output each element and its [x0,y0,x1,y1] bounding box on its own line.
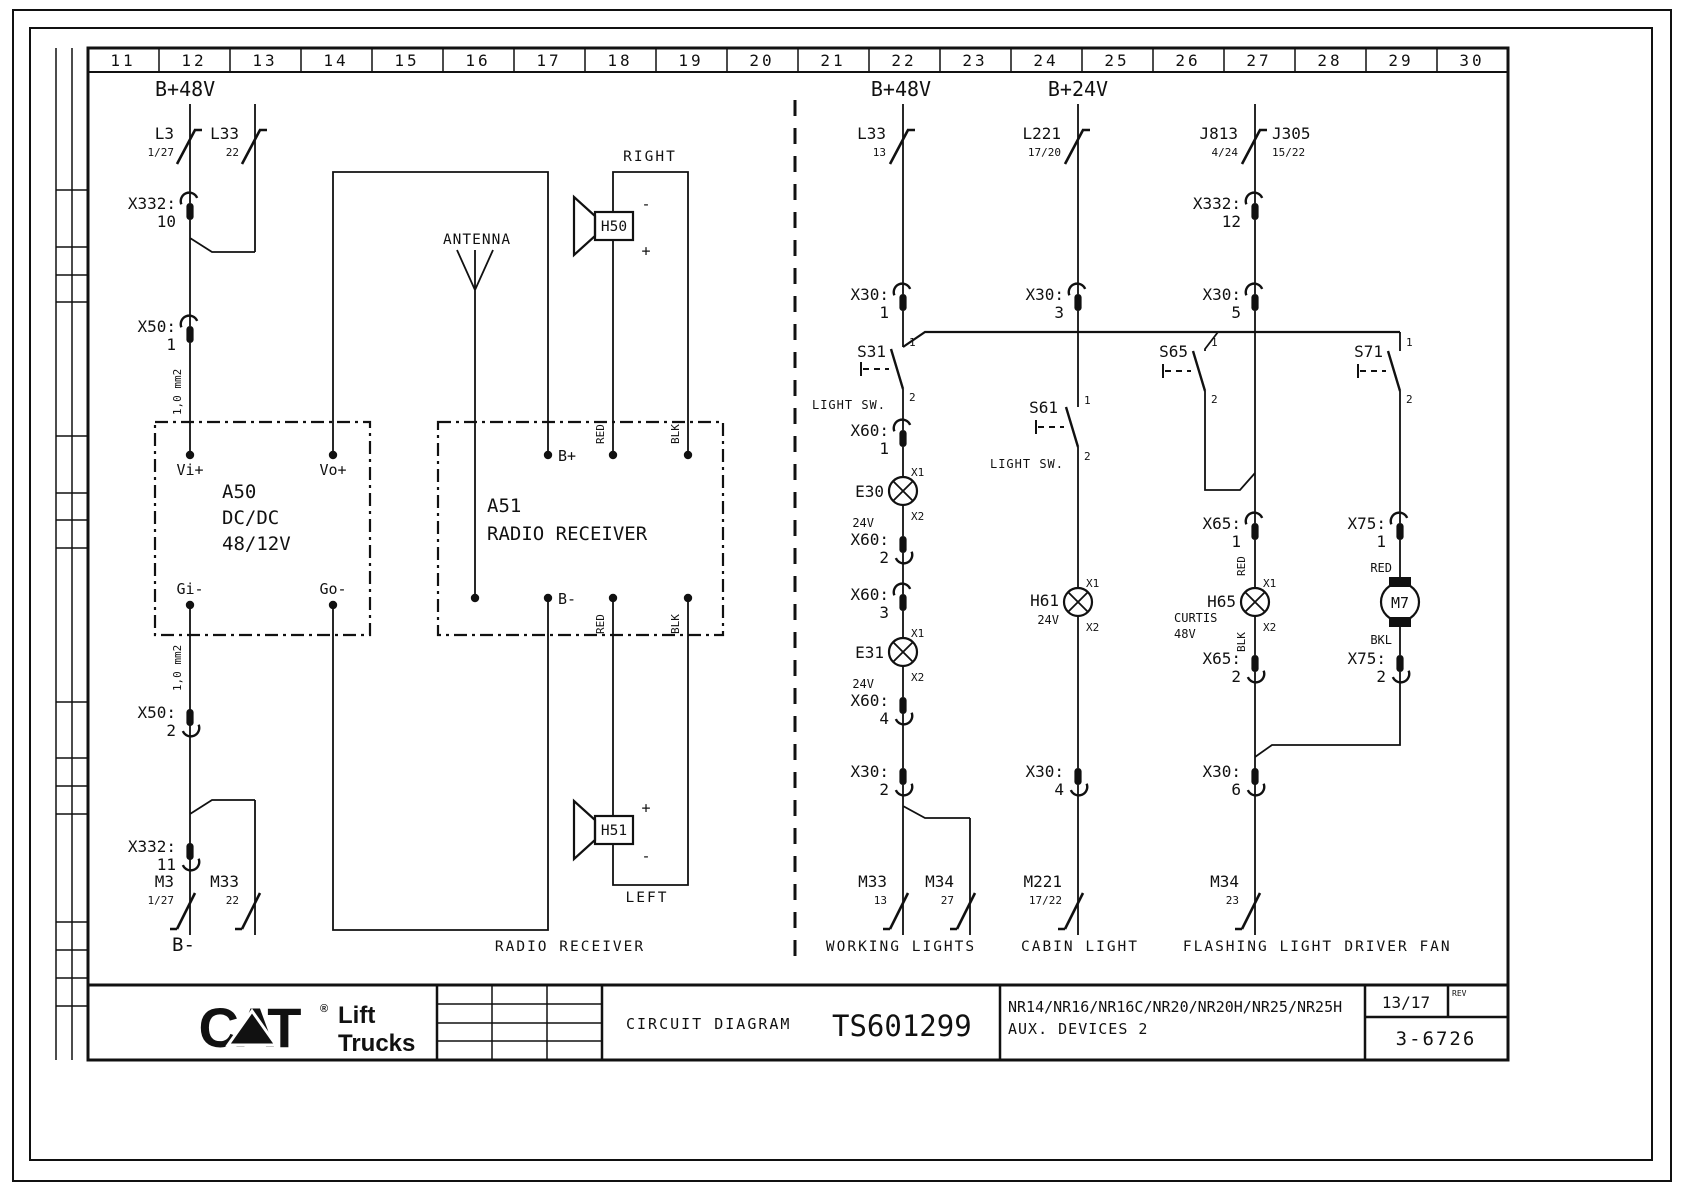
connector-x60-1-pin: 1 [879,439,889,458]
connector-x60-2 [896,536,915,566]
connector-x30-2-pin: 2 [879,780,889,799]
connector-x332-12 [1243,190,1262,220]
ruler-cell: 13 [252,51,277,70]
switch-s31-pin2: 2 [909,391,916,404]
connector-x30-1-ref: X30: [850,285,889,304]
switch-s65-pin2: 2 [1211,393,1218,406]
connector-x30-6 [1248,768,1267,798]
antenna-label: ANTENNA [443,232,511,248]
connector-x65-2-pin: 2 [1231,667,1241,686]
connector-x65-2 [1248,655,1267,685]
connector-x30-1 [891,281,910,311]
switch-s71-pin2: 2 [1406,393,1413,406]
lamp-h61 [1064,588,1092,616]
switch-s61-pin1: 1 [1084,394,1091,407]
ruler-cell: 15 [394,51,419,70]
connector-x60-4 [896,697,915,727]
connector-x75-1-ref: X75: [1347,514,1386,533]
switch-s61-function: LIGHT SW. [990,457,1064,471]
speaker-h51-minus: - [641,847,650,865]
contact-l221-pin: 17/20 [1028,146,1061,159]
ruler-cell: 18 [607,51,632,70]
contact-m221-ref: M221 [1023,872,1062,891]
lamp-h61-x2: X2 [1086,621,1099,634]
wire-gauge-label: 1,0 mm2 [171,369,184,415]
title-block: CAT ® Lift Trucks CIRCUIT DIAGRAM TS6012… [88,985,1508,1060]
connector-x60-3-ref: X60: [850,585,889,604]
contact-l33-13-pin: 13 [873,146,886,159]
contact-m34-27-pin: 27 [941,894,954,907]
lamp-h61-ref: H61 [1030,591,1059,610]
driver-fan-footer: DRIVER FAN [1344,939,1451,955]
ruler-cell: 26 [1175,51,1200,70]
contact-j813-ref: J813 [1199,124,1238,143]
contact-j305-ref: J305 [1272,124,1311,143]
lamp-e31-ref: E31 [855,643,884,662]
ruler-cell: 17 [536,51,561,70]
ruler-cell: 29 [1388,51,1413,70]
flashing-light-circuit: J813 4/24 J305 15/22 X332: 12 X30: 5 S65… [1159,104,1333,955]
connector-x60-4-pin: 4 [879,709,889,728]
connector-x75-1-pin: 1 [1376,532,1386,551]
contact-m34-27-ref: M34 [925,872,954,891]
working-lights-circuit: L33 13 X30: 1 S31 1 2 LIGHT SW. X60: 1 E… [812,104,1400,955]
antenna-symbol [457,250,493,598]
connector-x332-11 [183,843,202,873]
lamp-e31 [889,638,917,666]
switch-s31: S31 1 2 LIGHT SW. [812,336,916,412]
radio-section: B+48V L3 1/27 L33 22 X332: 10 X50: 1 1,0… [128,77,723,956]
switch-s31-ref: S31 [857,342,886,361]
a50-terminal-vo: Vo+ [319,461,346,479]
connector-x60-3-pin: 3 [879,603,889,622]
connector-x332-11-ref: X332: [128,837,176,856]
connector-x50-2-pin: 2 [166,721,176,740]
a51-terminal-bminus: B- [558,590,576,608]
fan-wire-red-label: RED [1370,561,1392,575]
cat-logo: CAT ® Lift Trucks [199,996,416,1059]
contact-l221-ref: L221 [1022,124,1061,143]
a50-terminal-go: Go- [319,580,346,598]
connector-x50-1-pin: 1 [166,335,176,354]
cabin-light-footer: CABIN LIGHT [1021,939,1139,955]
flashing-light-footer: FLASHING LIGHT [1183,939,1333,955]
switch-s65-pin1: 1 [1211,336,1218,349]
cat-logo-reg: ® [320,1003,328,1015]
ground-label: B- [172,934,195,956]
contact-l33-pin: 22 [226,146,239,159]
contact-m33-13-ref: M33 [858,872,887,891]
lamp-e30-ref: E30 [855,482,884,501]
zone-strip [56,48,88,1060]
rev-label: REV [1452,989,1467,998]
switch-s61-pin2: 2 [1084,450,1091,463]
switch-s61-ref: S61 [1029,398,1058,417]
lamp-h65 [1241,588,1269,616]
connector-x60-3 [891,581,910,611]
speaker-h51-plus: + [641,799,650,817]
working-lights-footer: WORKING LIGHTS [826,939,976,955]
ruler-cell: 22 [891,51,916,70]
switch-s71-pin1: 1 [1406,336,1413,349]
lamp-h65-x1: X1 [1263,577,1276,590]
a51-ref: A51 [487,495,521,517]
circuit-diagram: 11 12 13 14 15 16 17 18 19 20 21 22 23 2… [0,0,1684,1191]
ruler-cell: 28 [1317,51,1342,70]
switch-s65-ref: S65 [1159,342,1188,361]
wire-red-label: RED [1235,556,1248,576]
contact-j813-pin: 4/24 [1212,146,1239,159]
connector-x60-1 [891,417,910,447]
connector-x30-4-pin: 4 [1054,780,1064,799]
ruler-cell: 14 [323,51,348,70]
contact-m34-23-ref: M34 [1210,872,1239,891]
connector-x332-10-ref: X332: [128,194,176,213]
connector-x30-6-ref: X30: [1202,762,1241,781]
ruler-cell: 16 [465,51,490,70]
ruler-cell: 11 [110,51,135,70]
supply-48v-label-right: B+48V [871,77,931,101]
lamp-h65-ref: H65 [1207,592,1236,611]
ruler-cell: 24 [1033,51,1058,70]
lamp-h65-volt: 48V [1174,627,1196,641]
ruler-cell: 20 [749,51,774,70]
connector-x60-1-ref: X60: [850,421,889,440]
contact-m33-13-pin: 13 [874,894,887,907]
a51-wire-blk-top: BLK [669,424,682,444]
sheet-number: 13/17 [1382,993,1430,1012]
connector-x65-2-ref: X65: [1202,649,1241,668]
connector-x30-6-pin: 6 [1231,780,1241,799]
connector-x30-4 [1071,768,1090,798]
contact-m33-pin: 22 [226,894,239,907]
contact-j305-pin: 15/22 [1272,146,1305,159]
speaker-h51-ref: H51 [601,823,627,839]
lamp-e30 [889,477,917,505]
connector-x75-2 [1393,655,1412,685]
connector-x50-1 [178,313,197,343]
connector-x332-10 [178,190,197,220]
subtitle: AUX. DEVICES 2 [1008,1020,1148,1038]
contact-l3-ref: L3 [155,124,174,143]
contact-l33-ref: L33 [210,124,239,143]
switch-s31-pin1: 1 [909,336,916,349]
connector-x50-2-ref: X50: [137,703,176,722]
models: NR14/NR16/NR16C/NR20/NR20H/NR25/NR25H [1008,998,1342,1016]
cat-logo-lift: Lift [338,1002,375,1029]
connector-x50-2 [183,709,202,739]
connector-x75-1 [1388,510,1407,540]
connector-x30-2 [896,768,915,798]
cat-logo-trucks: Trucks [338,1030,415,1057]
lamp-e30-x2: X2 [911,510,924,523]
a50-line1: DC/DC [222,507,279,529]
ruler-cell: 12 [181,51,206,70]
connector-x30-4-ref: X30: [1025,762,1064,781]
aux-section: B+48V B+24V L33 13 X30: 1 S31 1 2 LIGHT … [812,77,1452,955]
supply-24v-label: B+24V [1048,77,1108,101]
connector-x65-1-pin: 1 [1231,532,1241,551]
speaker-right-position: RIGHT [623,149,677,165]
ruler-cell: 30 [1459,51,1484,70]
a50-terminal-gi: Gi- [176,580,203,598]
connector-x332-10-pin: 10 [157,212,176,231]
connector-x332-12-pin: 12 [1222,212,1241,231]
ruler-cell: 23 [962,51,987,70]
lamp-e30-volt: 24V [852,516,874,530]
motor-m7: M7 [1381,577,1419,627]
connector-x60-4-ref: X60: [850,691,889,710]
contact-m33-ref: M33 [210,872,239,891]
fan-wire-bkl-label: BKL [1370,633,1392,647]
a51-wire-red-top: RED [594,424,607,444]
bus-48v [903,332,1400,347]
doc-type: CIRCUIT DIAGRAM [626,1015,791,1033]
motor-m7-ref: M7 [1391,594,1409,612]
contact-m3-pin: 1/27 [148,894,175,907]
lamp-h65-x2: X2 [1263,621,1276,634]
connector-x30-3-pin: 3 [1054,303,1064,322]
connector-x30-5-pin: 5 [1231,303,1241,322]
contact-m3-ref: M3 [155,872,174,891]
connector-x65-1-ref: X65: [1202,514,1241,533]
speaker-h50-plus: + [641,242,650,260]
driver-fan-circuit: S71 1 2 X75: 1 RED M7 BKL X75: 2 DRIVER … [1255,332,1452,955]
connector-x332-12-ref: X332: [1193,194,1241,213]
contact-l3-pin: 1/27 [148,146,175,159]
speaker-h50-minus: - [641,195,650,213]
doc-number: TS601299 [832,1009,972,1043]
lamp-h61-volt: 24V [1037,613,1059,627]
a50-line2: 48/12V [222,533,291,555]
connector-x75-2-ref: X75: [1347,649,1386,668]
supply-48v-label: B+48V [155,77,215,101]
a51-terminal-bplus: B+ [558,447,576,465]
connector-x75-2-pin: 2 [1376,667,1386,686]
lamp-h65-maker: CURTIS [1174,611,1217,625]
switch-s65: S65 1 2 [1159,332,1255,490]
ruler-cell: 27 [1246,51,1271,70]
lamp-e31-x1: X1 [911,627,924,640]
lamp-e31-volt: 24V [852,677,874,691]
radio-footer-label: RADIO RECEIVER [495,939,645,955]
wire-gauge-label-2: 1,0 mm2 [171,645,184,691]
switch-s71-ref: S71 [1354,342,1383,361]
connector-x60-2-pin: 2 [879,548,889,567]
connector-x60-2-ref: X60: [850,530,889,549]
ruler-cell: 25 [1104,51,1129,70]
a51-name: RADIO RECEIVER [487,523,648,545]
connector-x30-1-pin: 1 [879,303,889,322]
lamp-e31-x2: X2 [911,671,924,684]
connector-x30-3-ref: X30: [1025,285,1064,304]
a51-wire-blk-bottom: BLK [669,614,682,634]
connector-x65-1 [1243,510,1262,540]
connector-x30-2-ref: X30: [850,762,889,781]
cabin-light-circuit: L221 17/20 X30: 3 S61 1 2 LIGHT SW. H61 … [990,104,1139,955]
ruler-cell: 19 [678,51,703,70]
connector-x30-5-ref: X30: [1202,285,1241,304]
switch-s71: S71 1 2 [1354,336,1413,406]
speaker-h50-ref: H50 [601,219,627,235]
speaker-left-position: LEFT [626,890,669,906]
contact-m34-23-pin: 23 [1226,894,1239,907]
switch-s61: S61 1 2 LIGHT SW. [990,394,1091,471]
connector-x30-3 [1066,281,1085,311]
connector-x30-5 [1243,281,1262,311]
a51-wire-red-bottom: RED [594,614,607,634]
ruler: 11 12 13 14 15 16 17 18 19 20 21 22 23 2… [88,48,1508,72]
a50-terminal-vi: Vi+ [176,461,203,479]
switch-s31-function: LIGHT SW. [812,398,886,412]
ruler-cell: 21 [820,51,845,70]
drawing-code: 3-6726 [1396,1028,1477,1050]
contact-m221-pin: 17/22 [1029,894,1062,907]
lamp-e30-x1: X1 [911,466,924,479]
a50-ref: A50 [222,481,256,503]
connector-x50-1-ref: X50: [137,317,176,336]
contact-l33-13-ref: L33 [857,124,886,143]
lamp-h61-x1: X1 [1086,577,1099,590]
